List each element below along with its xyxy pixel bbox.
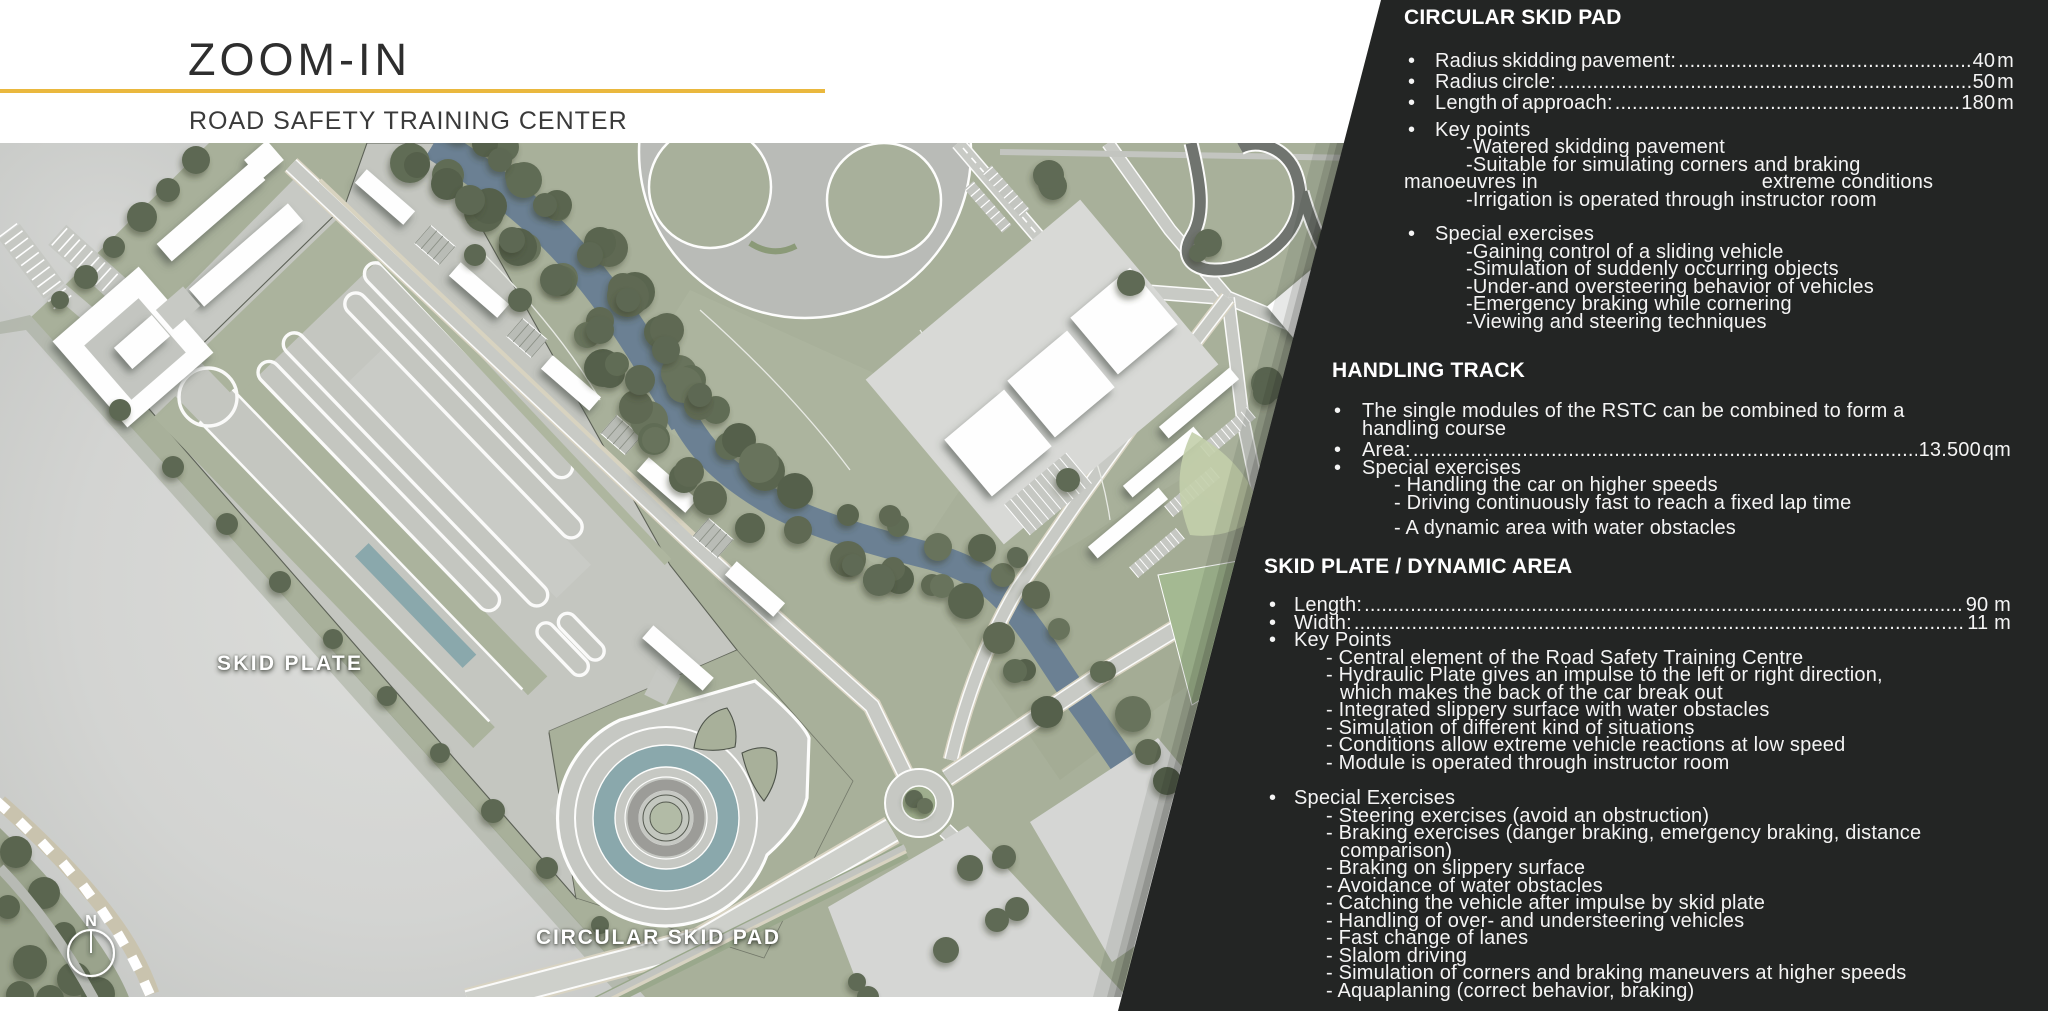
svg-text:N: N <box>85 913 97 930</box>
